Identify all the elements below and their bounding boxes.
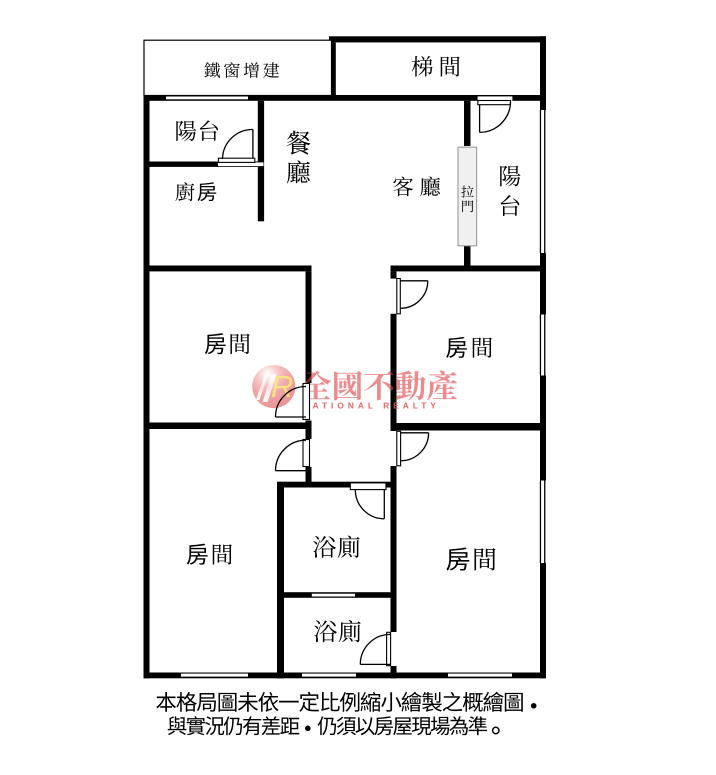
svg-text:NATIONAL REALTY: NATIONAL REALTY: [303, 401, 440, 411]
